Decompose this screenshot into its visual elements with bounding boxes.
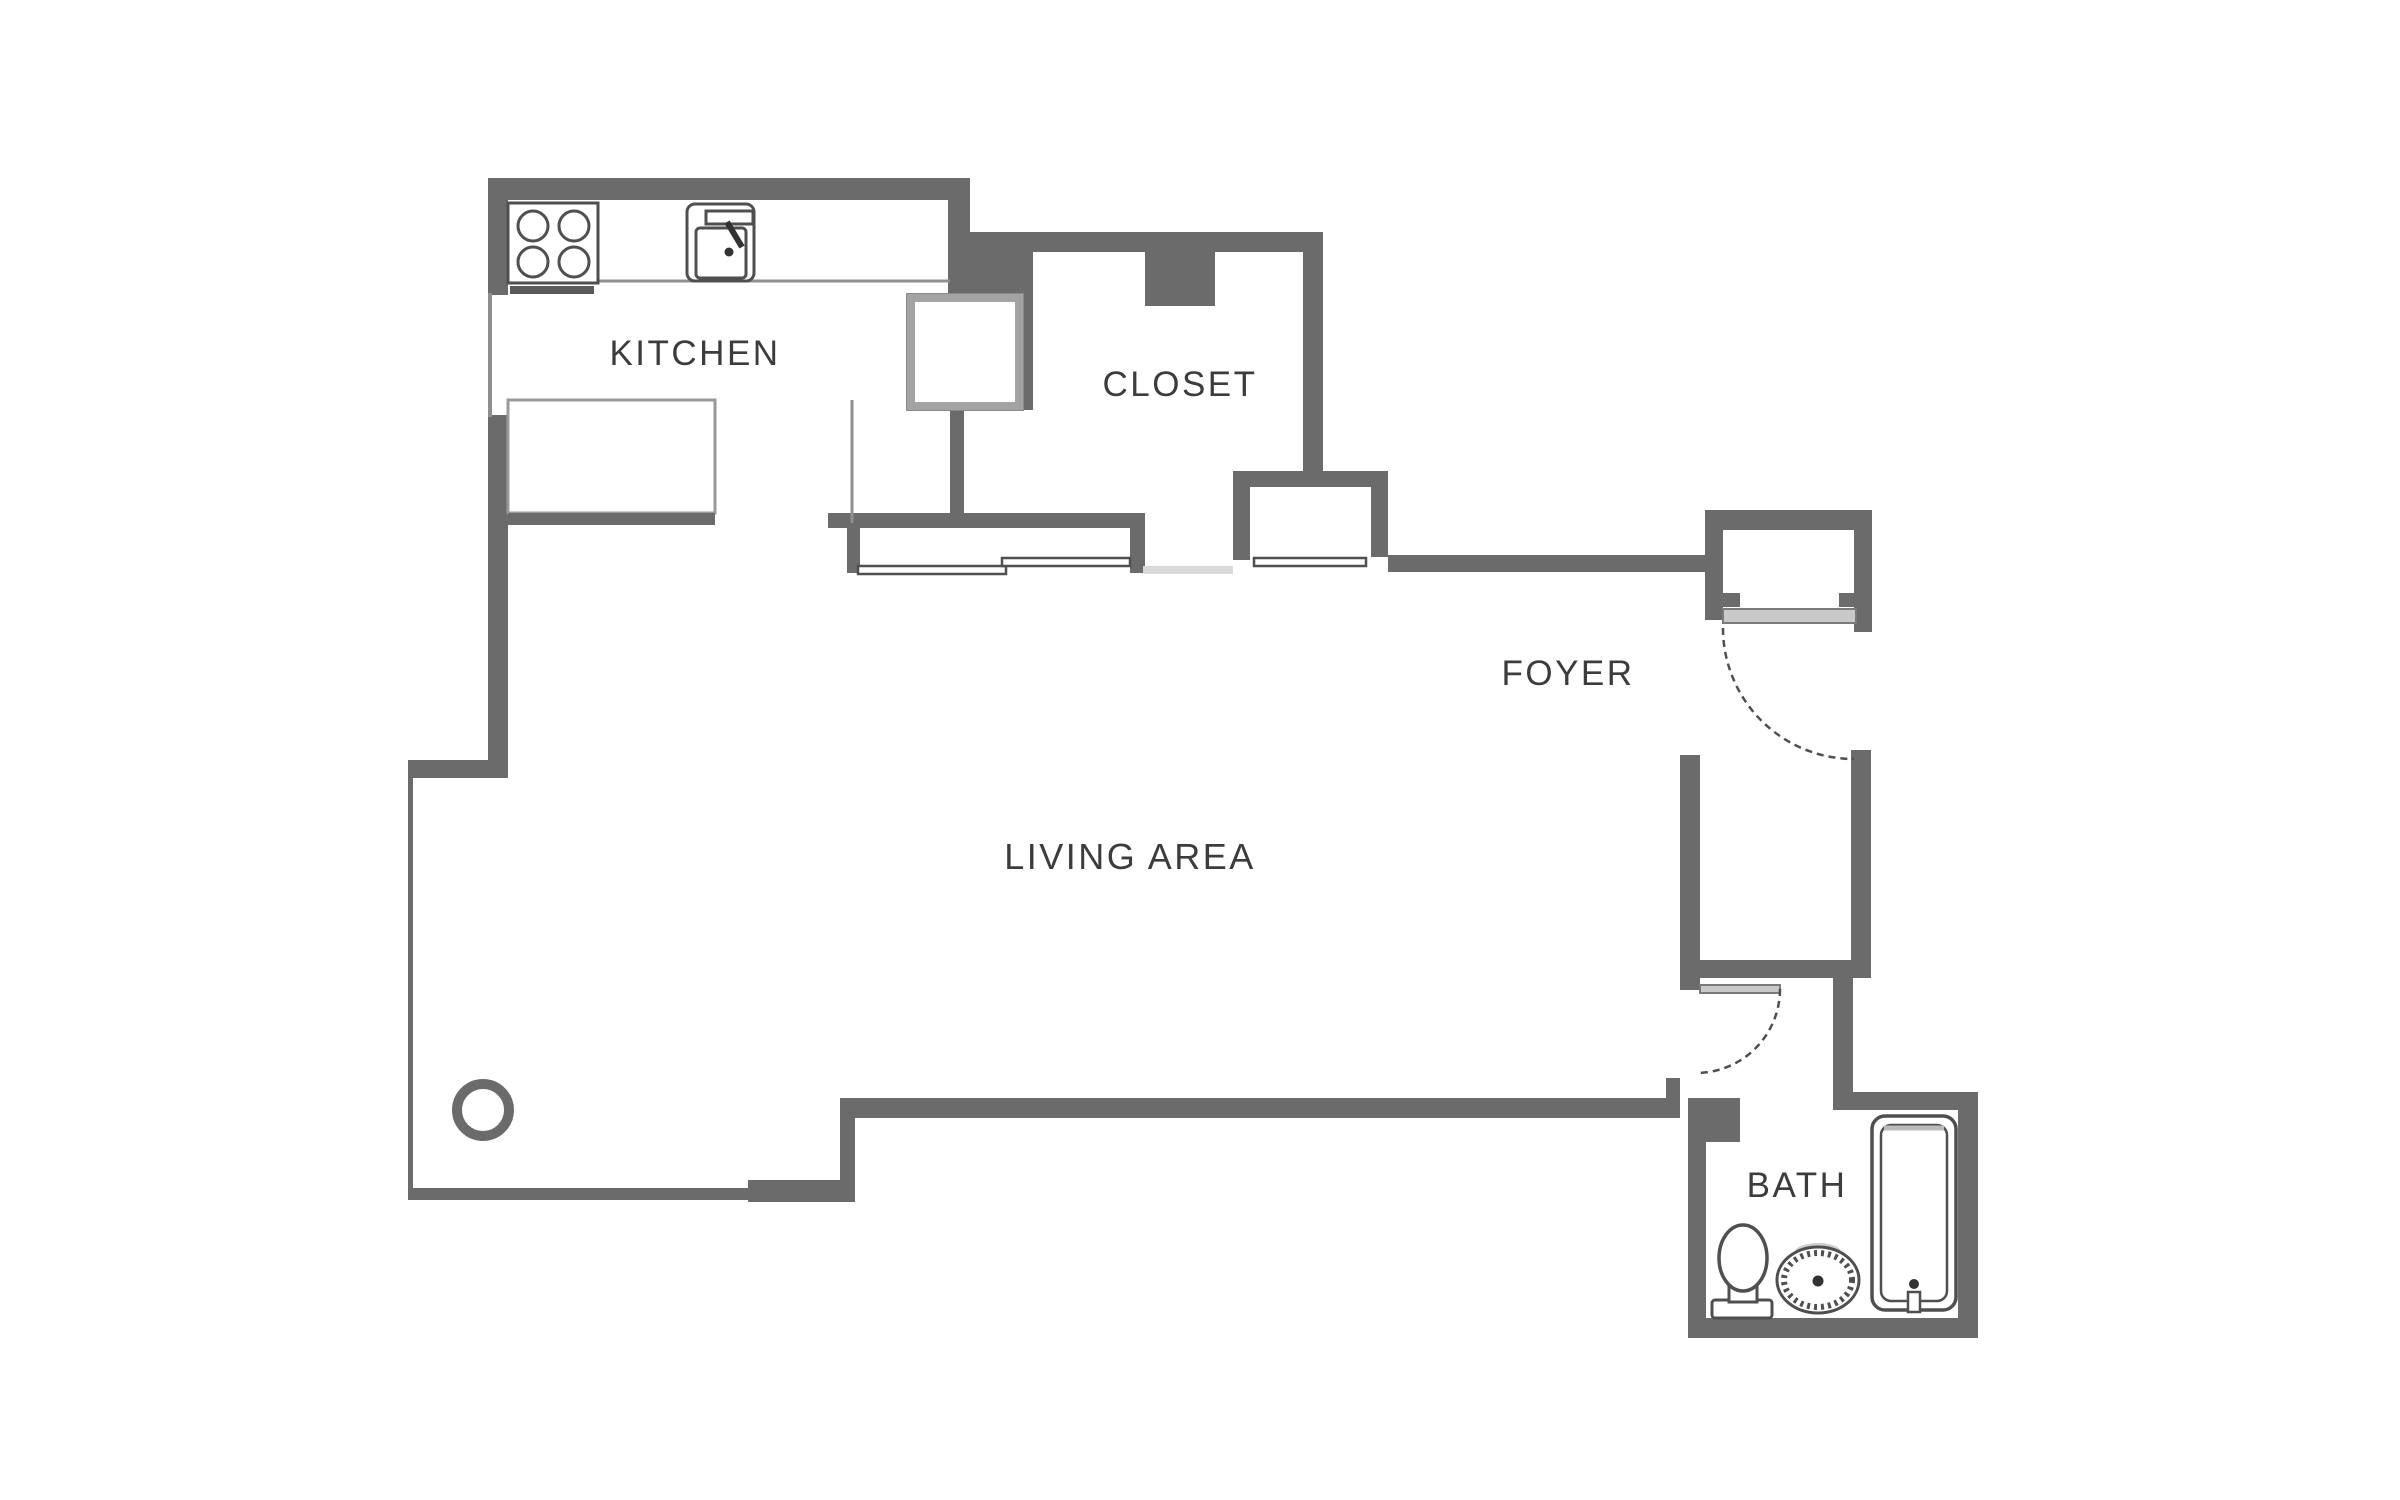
living-area-label: LIVING AREA [1004, 836, 1256, 878]
floor-plan: KITCHEN CLOSET FOYER LIVING AREA BATH [0, 0, 2400, 1500]
foyer-label: FOYER [1501, 654, 1634, 694]
kitchen-label: KITCHEN [609, 334, 780, 374]
bathtub-icon [1872, 1116, 1956, 1312]
floor-plan-drawing [0, 0, 2400, 1500]
shaft-icon [907, 294, 1023, 410]
sliding-door-icon [858, 558, 1366, 574]
interior-door-icon [1696, 985, 1780, 1073]
toilet-icon [1712, 1225, 1772, 1318]
bath-label: BATH [1747, 1166, 1848, 1206]
stove-icon [508, 203, 598, 294]
counter-icon [508, 281, 950, 525]
entry-door-icon [1723, 593, 1857, 759]
column-icon [457, 1084, 509, 1136]
kitchen-sink-icon [687, 204, 754, 281]
bath-sink-icon [1777, 1243, 1859, 1313]
closet-label: CLOSET [1102, 365, 1257, 405]
